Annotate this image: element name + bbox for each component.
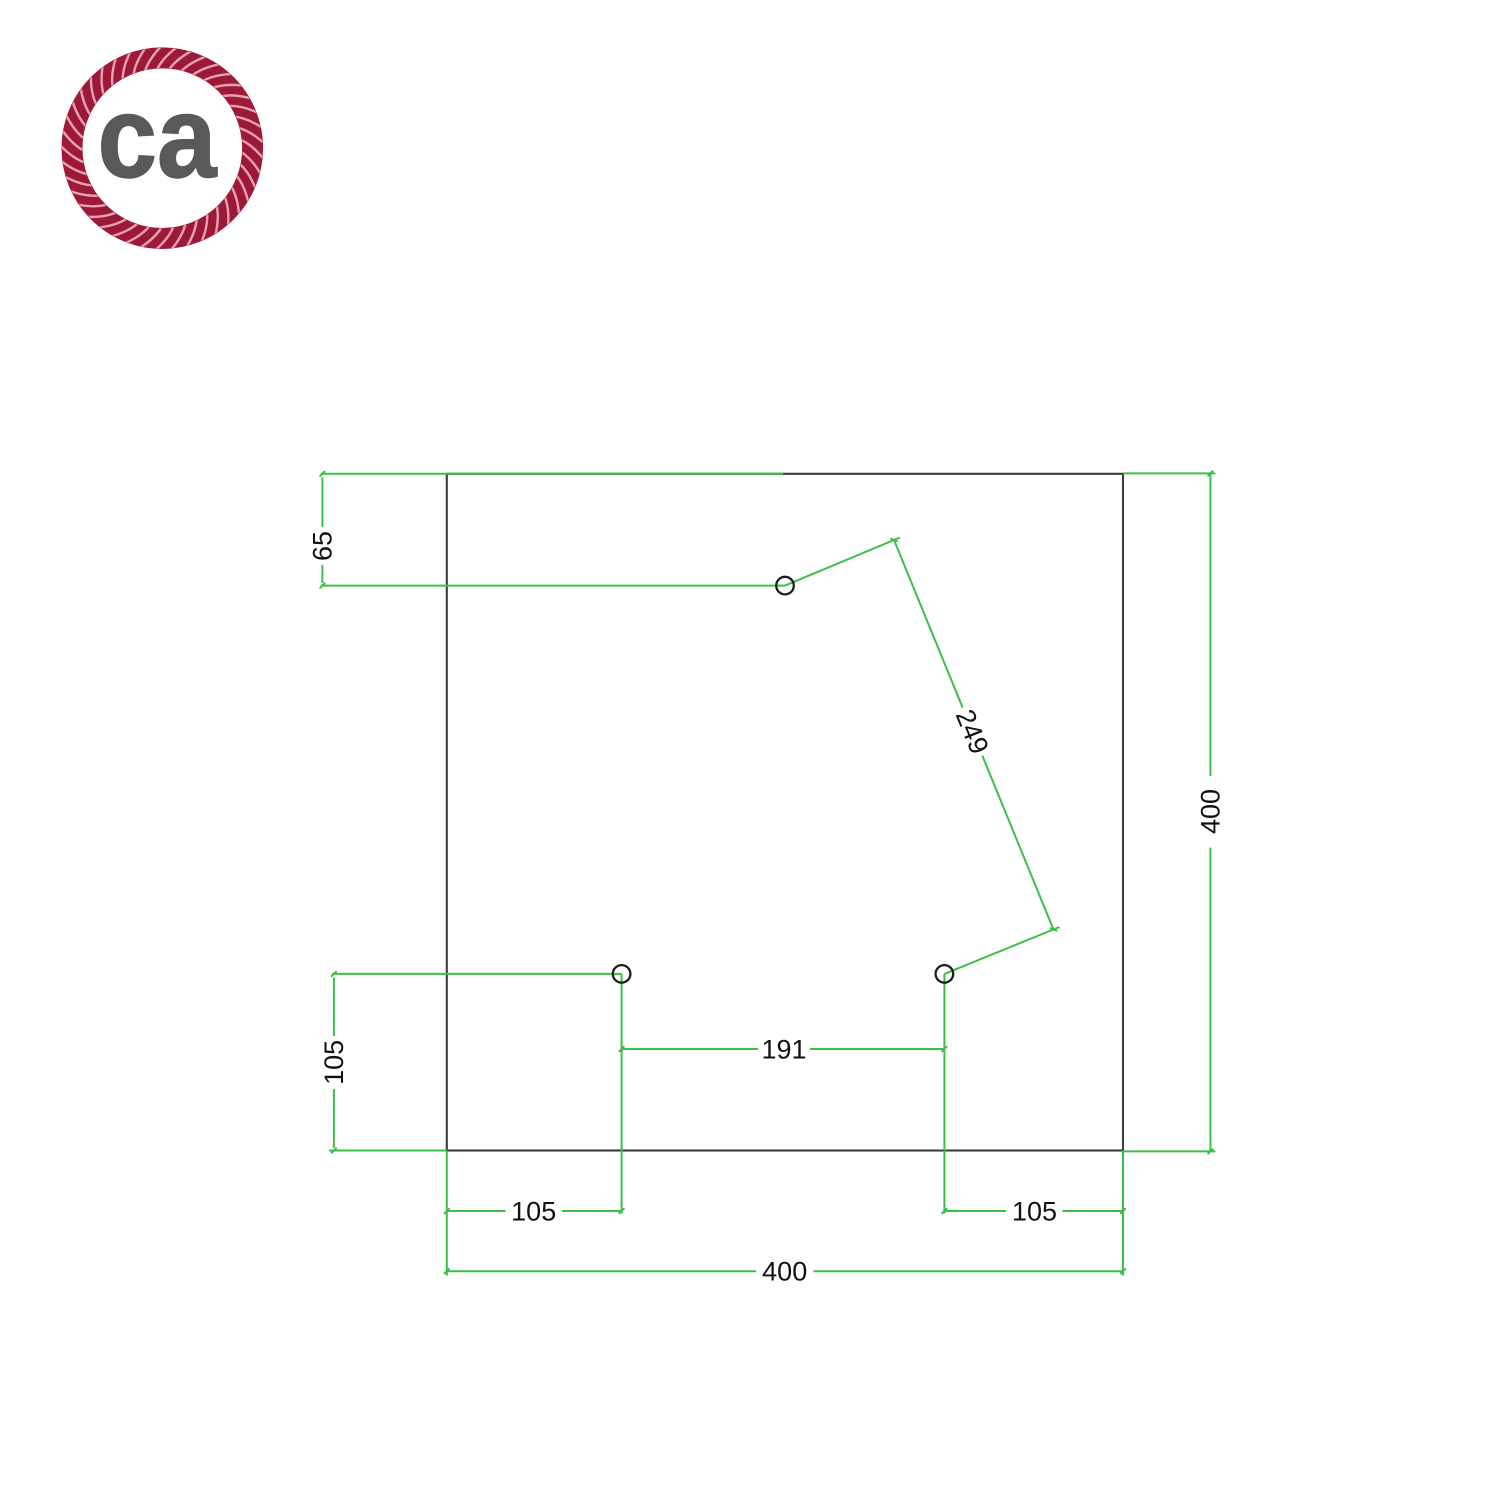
svg-text:191: 191 <box>761 1034 806 1064</box>
svg-text:105: 105 <box>319 1040 349 1085</box>
svg-text:400: 400 <box>762 1257 807 1287</box>
svg-text:105: 105 <box>1012 1196 1057 1226</box>
svg-text:249: 249 <box>950 705 995 758</box>
svg-text:400: 400 <box>1196 789 1226 834</box>
svg-text:ca: ca <box>98 72 218 202</box>
svg-text:105: 105 <box>511 1196 556 1226</box>
svg-text:65: 65 <box>308 531 338 561</box>
